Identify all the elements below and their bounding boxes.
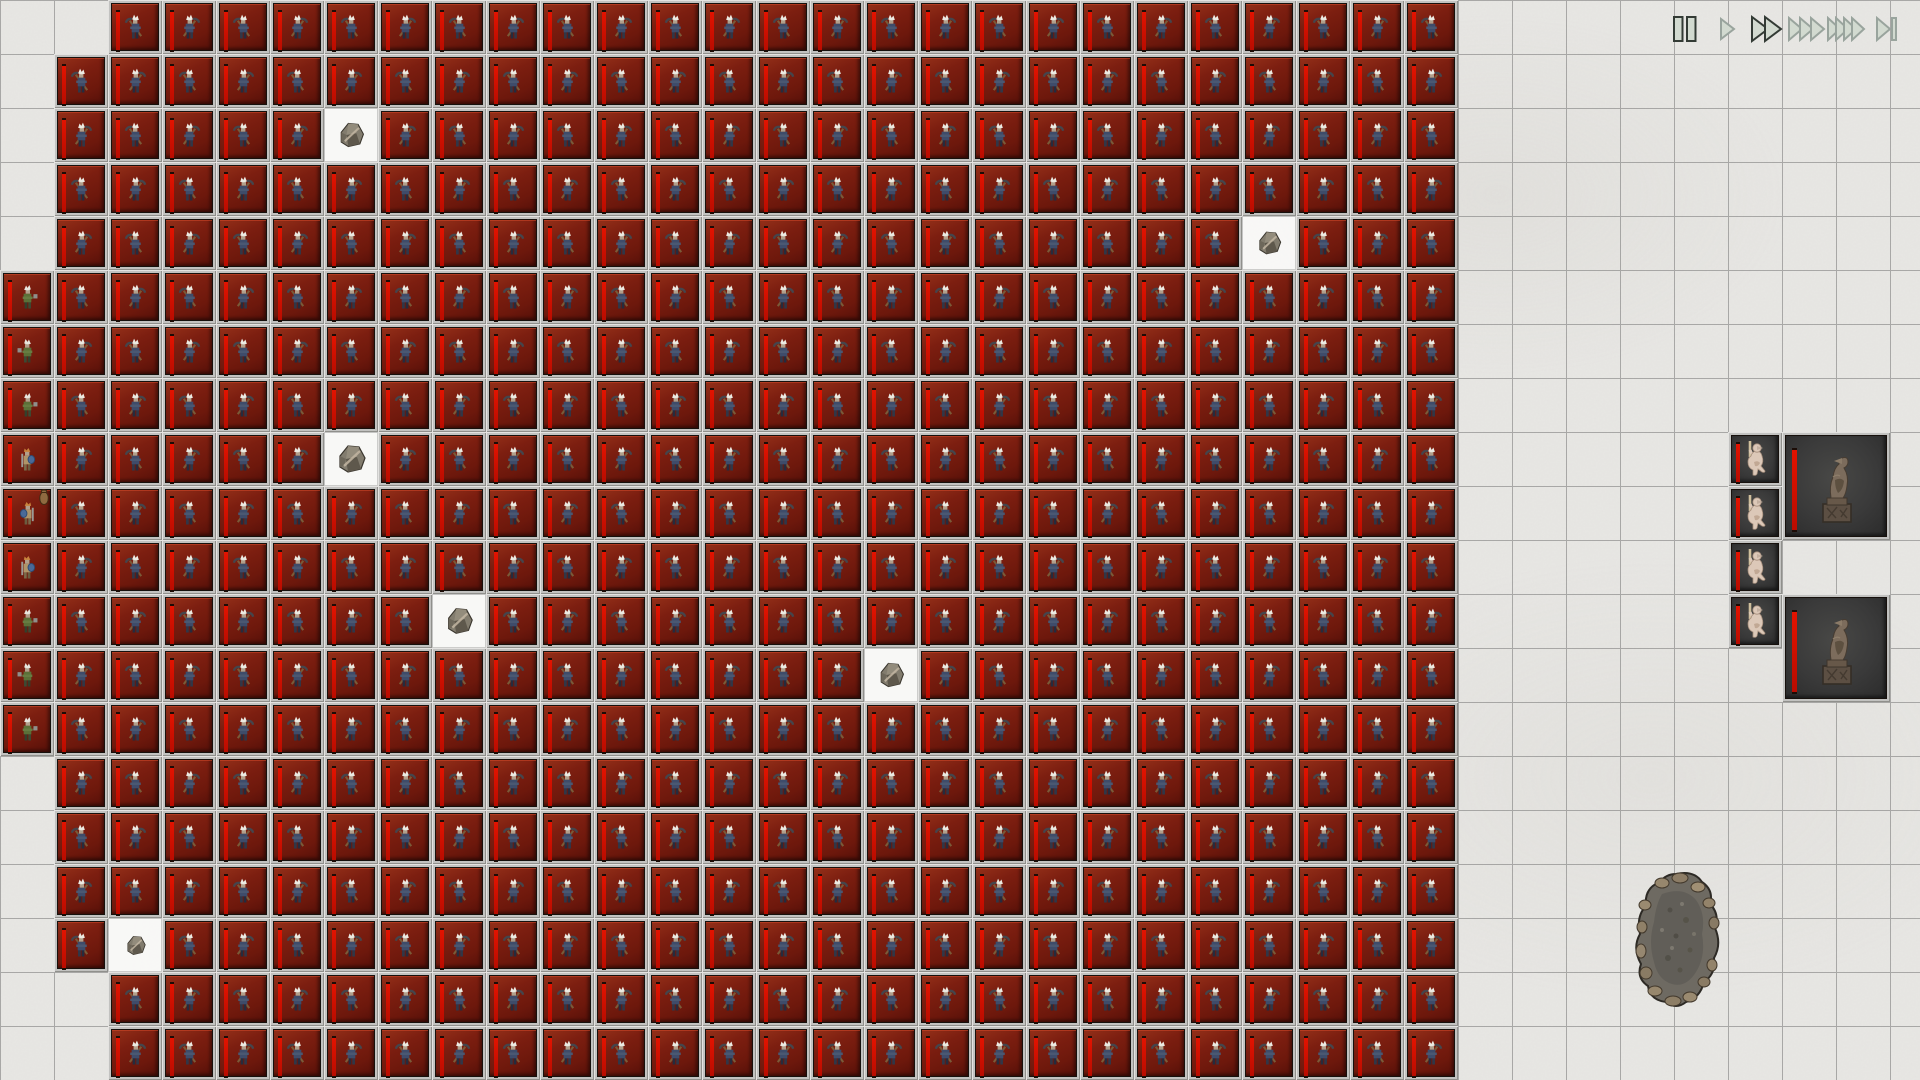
army-unit-tile[interactable] (1242, 648, 1296, 702)
army-unit-tile[interactable] (1026, 324, 1080, 378)
army-unit-tile[interactable] (648, 810, 702, 864)
army-unit-tile[interactable] (1296, 972, 1350, 1026)
army-unit-tile[interactable] (486, 54, 540, 108)
army-unit-tile[interactable] (1404, 54, 1458, 108)
army-unit-tile[interactable] (1404, 918, 1458, 972)
army-unit-tile[interactable] (324, 324, 378, 378)
army-unit-tile[interactable] (810, 1026, 864, 1080)
army-unit-tile[interactable] (594, 108, 648, 162)
army-unit-tile[interactable] (216, 972, 270, 1026)
army-unit-tile[interactable] (972, 918, 1026, 972)
army-unit-tile[interactable] (756, 54, 810, 108)
army-unit-tile[interactable] (108, 162, 162, 216)
army-unit-tile[interactable] (594, 648, 648, 702)
army-unit-tile[interactable] (918, 54, 972, 108)
army-unit-tile[interactable] (756, 324, 810, 378)
army-unit-tile[interactable] (0, 540, 54, 594)
army-unit-tile[interactable] (1350, 918, 1404, 972)
army-unit-tile[interactable] (486, 0, 540, 54)
army-unit-tile[interactable] (108, 432, 162, 486)
army-unit-tile[interactable] (918, 270, 972, 324)
army-unit-tile[interactable] (1242, 810, 1296, 864)
army-unit-tile[interactable] (216, 648, 270, 702)
army-unit-tile[interactable] (702, 0, 756, 54)
army-unit-tile[interactable] (1134, 540, 1188, 594)
army-unit-tile[interactable] (972, 0, 1026, 54)
army-unit-tile[interactable] (648, 540, 702, 594)
army-unit-tile[interactable] (702, 270, 756, 324)
army-unit-tile[interactable] (54, 54, 108, 108)
army-unit-tile[interactable] (1404, 432, 1458, 486)
army-unit-tile[interactable] (972, 486, 1026, 540)
army-unit-tile[interactable] (270, 108, 324, 162)
faster-button[interactable] (1784, 10, 1830, 50)
army-unit-tile[interactable] (1080, 918, 1134, 972)
army-unit-tile[interactable] (1188, 594, 1242, 648)
army-unit-tile[interactable] (1296, 108, 1350, 162)
army-unit-tile[interactable] (1134, 594, 1188, 648)
army-unit-tile[interactable] (486, 216, 540, 270)
army-unit-tile[interactable] (1296, 594, 1350, 648)
army-unit-tile[interactable] (540, 810, 594, 864)
army-unit-tile[interactable] (1242, 108, 1296, 162)
army-unit-tile[interactable] (1404, 594, 1458, 648)
army-unit-tile[interactable] (918, 216, 972, 270)
army-unit-tile[interactable] (378, 810, 432, 864)
army-unit-tile[interactable] (594, 54, 648, 108)
army-unit-tile[interactable] (486, 1026, 540, 1080)
army-unit-tile[interactable] (1026, 486, 1080, 540)
army-unit-tile[interactable] (432, 54, 486, 108)
army-unit-tile[interactable] (702, 54, 756, 108)
army-unit-tile[interactable] (540, 1026, 594, 1080)
army-unit-tile[interactable] (378, 270, 432, 324)
army-unit-tile[interactable] (54, 918, 108, 972)
army-unit-tile[interactable] (1188, 0, 1242, 54)
army-unit-tile[interactable] (1296, 756, 1350, 810)
army-unit-tile[interactable] (594, 702, 648, 756)
army-unit-tile[interactable] (324, 972, 378, 1026)
army-unit-tile[interactable] (216, 270, 270, 324)
army-unit-tile[interactable] (702, 108, 756, 162)
army-unit-tile[interactable] (972, 540, 1026, 594)
army-unit-tile[interactable] (486, 756, 540, 810)
army-unit-tile[interactable] (378, 540, 432, 594)
army-unit-tile[interactable] (1350, 216, 1404, 270)
army-unit-tile[interactable] (864, 108, 918, 162)
army-unit-tile[interactable] (918, 378, 972, 432)
army-unit-tile[interactable] (1296, 918, 1350, 972)
army-unit-tile[interactable] (810, 486, 864, 540)
army-unit-tile[interactable] (378, 324, 432, 378)
army-unit-tile[interactable] (1404, 108, 1458, 162)
army-unit-tile[interactable] (864, 594, 918, 648)
army-unit-tile[interactable] (648, 432, 702, 486)
army-unit-tile[interactable] (270, 270, 324, 324)
army-unit-tile[interactable] (432, 756, 486, 810)
army-unit-tile[interactable] (864, 756, 918, 810)
army-unit-tile[interactable] (1350, 54, 1404, 108)
army-unit-tile[interactable] (162, 648, 216, 702)
army-unit-tile[interactable] (432, 648, 486, 702)
pause-button[interactable] (1662, 10, 1708, 50)
army-unit-tile[interactable] (0, 378, 54, 432)
army-unit-tile[interactable] (108, 378, 162, 432)
army-unit-tile[interactable] (918, 702, 972, 756)
army-unit-tile[interactable] (378, 486, 432, 540)
army-unit-tile[interactable] (432, 0, 486, 54)
army-unit-tile[interactable] (216, 324, 270, 378)
army-unit-tile[interactable] (756, 702, 810, 756)
army-unit-tile[interactable] (270, 972, 324, 1026)
army-unit-tile[interactable] (378, 702, 432, 756)
army-unit-tile[interactable] (1188, 972, 1242, 1026)
army-unit-tile[interactable] (378, 648, 432, 702)
army-unit-tile[interactable] (1404, 972, 1458, 1026)
army-unit-tile[interactable] (1242, 756, 1296, 810)
army-unit-tile[interactable] (648, 1026, 702, 1080)
army-unit-tile[interactable] (810, 594, 864, 648)
army-unit-tile[interactable] (1026, 756, 1080, 810)
army-unit-tile[interactable] (108, 1026, 162, 1080)
army-unit-tile[interactable] (1350, 810, 1404, 864)
army-unit-tile[interactable] (1134, 486, 1188, 540)
army-unit-tile[interactable] (1134, 864, 1188, 918)
army-unit-tile[interactable] (864, 918, 918, 972)
army-unit-tile[interactable] (864, 324, 918, 378)
army-unit-tile[interactable] (918, 972, 972, 1026)
army-unit-tile[interactable] (1350, 324, 1404, 378)
army-unit-tile[interactable] (1188, 864, 1242, 918)
army-unit-tile[interactable] (756, 594, 810, 648)
army-unit-tile[interactable] (1080, 1026, 1134, 1080)
army-unit-tile[interactable] (1242, 1026, 1296, 1080)
army-unit-tile[interactable] (378, 378, 432, 432)
army-unit-tile[interactable] (1242, 702, 1296, 756)
army-unit-tile[interactable] (1188, 540, 1242, 594)
army-unit-tile[interactable] (540, 756, 594, 810)
army-unit-tile[interactable] (270, 540, 324, 594)
army-unit-tile[interactable] (270, 756, 324, 810)
army-unit-tile[interactable] (162, 702, 216, 756)
army-unit-tile[interactable] (1350, 648, 1404, 702)
army-unit-tile[interactable] (864, 162, 918, 216)
army-unit-tile[interactable] (1080, 216, 1134, 270)
army-unit-tile[interactable] (0, 270, 54, 324)
army-unit-tile[interactable] (54, 324, 108, 378)
army-unit-tile[interactable] (594, 756, 648, 810)
army-unit-tile[interactable] (432, 540, 486, 594)
army-unit-tile[interactable] (108, 972, 162, 1026)
army-unit-tile[interactable] (972, 1026, 1026, 1080)
army-unit-tile[interactable] (1296, 648, 1350, 702)
army-unit-tile[interactable] (1134, 810, 1188, 864)
army-unit-tile[interactable] (270, 918, 324, 972)
army-unit-tile[interactable] (270, 486, 324, 540)
army-unit-tile[interactable] (918, 810, 972, 864)
army-unit-tile[interactable] (810, 702, 864, 756)
army-unit-tile[interactable] (972, 54, 1026, 108)
army-unit-tile[interactable] (1188, 756, 1242, 810)
army-unit-tile[interactable] (1242, 972, 1296, 1026)
army-unit-tile[interactable] (1134, 162, 1188, 216)
army-unit-tile[interactable] (864, 864, 918, 918)
army-unit-tile[interactable] (216, 432, 270, 486)
army-unit-tile[interactable] (972, 702, 1026, 756)
army-unit-tile[interactable] (810, 756, 864, 810)
army-unit-tile[interactable] (1296, 702, 1350, 756)
army-unit-tile[interactable] (864, 486, 918, 540)
army-unit-tile[interactable] (1296, 162, 1350, 216)
army-unit-tile[interactable] (1080, 270, 1134, 324)
army-unit-tile[interactable] (162, 108, 216, 162)
army-unit-tile[interactable] (1026, 972, 1080, 1026)
enemy-unit-tile-small[interactable] (1728, 486, 1782, 540)
army-unit-tile[interactable] (540, 594, 594, 648)
army-unit-tile[interactable] (918, 0, 972, 54)
army-unit-tile[interactable] (1350, 540, 1404, 594)
army-unit-tile[interactable] (1134, 918, 1188, 972)
army-unit-tile[interactable] (270, 1026, 324, 1080)
army-unit-tile[interactable] (432, 162, 486, 216)
army-unit-tile[interactable] (378, 432, 432, 486)
army-unit-tile[interactable] (1296, 324, 1350, 378)
army-unit-tile[interactable] (108, 108, 162, 162)
army-unit-tile[interactable] (918, 918, 972, 972)
army-unit-tile[interactable] (1080, 648, 1134, 702)
army-unit-tile[interactable] (1188, 54, 1242, 108)
army-unit-tile[interactable] (648, 216, 702, 270)
army-unit-tile[interactable] (702, 918, 756, 972)
army-unit-tile[interactable] (324, 864, 378, 918)
army-unit-tile[interactable] (432, 324, 486, 378)
army-unit-tile[interactable] (648, 270, 702, 324)
army-unit-tile[interactable] (486, 864, 540, 918)
army-unit-tile[interactable] (756, 0, 810, 54)
army-unit-tile[interactable] (108, 324, 162, 378)
army-unit-tile[interactable] (1350, 0, 1404, 54)
army-unit-tile[interactable] (324, 648, 378, 702)
army-unit-tile[interactable] (216, 486, 270, 540)
army-unit-tile[interactable] (324, 810, 378, 864)
army-unit-tile[interactable] (54, 162, 108, 216)
army-unit-tile[interactable] (216, 594, 270, 648)
army-unit-tile[interactable] (972, 594, 1026, 648)
army-unit-tile[interactable] (216, 864, 270, 918)
army-unit-tile[interactable] (810, 324, 864, 378)
army-unit-tile[interactable] (1026, 270, 1080, 324)
army-unit-tile[interactable] (216, 918, 270, 972)
army-unit-tile[interactable] (216, 378, 270, 432)
army-unit-tile[interactable] (1350, 270, 1404, 324)
army-unit-tile[interactable] (162, 1026, 216, 1080)
army-unit-tile[interactable] (270, 432, 324, 486)
army-unit-tile[interactable] (486, 648, 540, 702)
army-unit-tile[interactable] (864, 432, 918, 486)
army-unit-tile[interactable] (1080, 162, 1134, 216)
army-unit-tile[interactable] (540, 486, 594, 540)
army-unit-tile[interactable] (1404, 324, 1458, 378)
army-unit-tile[interactable] (216, 756, 270, 810)
army-unit-tile[interactable] (162, 270, 216, 324)
army-unit-tile[interactable] (540, 54, 594, 108)
army-unit-tile[interactable] (648, 54, 702, 108)
army-unit-tile[interactable] (1134, 0, 1188, 54)
army-unit-tile[interactable] (1296, 486, 1350, 540)
army-unit-tile[interactable] (216, 540, 270, 594)
army-unit-tile[interactable] (756, 108, 810, 162)
army-unit-tile[interactable] (324, 54, 378, 108)
army-unit-tile[interactable] (918, 594, 972, 648)
army-unit-tile[interactable] (1404, 648, 1458, 702)
army-unit-tile[interactable] (1080, 108, 1134, 162)
army-unit-tile[interactable] (648, 756, 702, 810)
army-unit-tile[interactable] (324, 1026, 378, 1080)
army-unit-tile[interactable] (432, 486, 486, 540)
army-unit-tile[interactable] (1080, 54, 1134, 108)
army-unit-tile[interactable] (594, 432, 648, 486)
army-unit-tile[interactable] (702, 864, 756, 918)
army-unit-tile[interactable] (810, 972, 864, 1026)
enemy-unit-tile-small[interactable] (1728, 540, 1782, 594)
army-unit-tile[interactable] (1350, 486, 1404, 540)
army-unit-tile[interactable] (486, 486, 540, 540)
army-unit-tile[interactable] (1350, 594, 1404, 648)
army-unit-tile[interactable] (972, 972, 1026, 1026)
army-unit-tile[interactable] (918, 162, 972, 216)
army-unit-tile[interactable] (432, 1026, 486, 1080)
army-unit-tile[interactable] (486, 972, 540, 1026)
army-unit-tile[interactable] (810, 0, 864, 54)
army-unit-tile[interactable] (864, 378, 918, 432)
army-unit-tile[interactable] (702, 972, 756, 1026)
army-unit-tile[interactable] (864, 0, 918, 54)
army-unit-tile[interactable] (864, 54, 918, 108)
army-unit-tile[interactable] (1026, 216, 1080, 270)
army-unit-tile[interactable] (162, 216, 216, 270)
army-unit-tile[interactable] (432, 810, 486, 864)
army-unit-tile[interactable] (162, 540, 216, 594)
army-unit-tile[interactable] (594, 486, 648, 540)
army-unit-tile[interactable] (648, 108, 702, 162)
army-unit-tile[interactable] (594, 864, 648, 918)
army-unit-tile[interactable] (378, 1026, 432, 1080)
army-unit-tile[interactable] (594, 972, 648, 1026)
army-unit-tile[interactable] (1296, 270, 1350, 324)
army-unit-tile[interactable] (0, 324, 54, 378)
army-unit-tile[interactable] (54, 108, 108, 162)
army-unit-tile[interactable] (324, 378, 378, 432)
army-unit-tile[interactable] (1296, 540, 1350, 594)
army-unit-tile[interactable] (162, 0, 216, 54)
army-unit-tile[interactable] (540, 270, 594, 324)
army-unit-tile[interactable] (756, 918, 810, 972)
army-unit-tile[interactable] (108, 810, 162, 864)
army-unit-tile[interactable] (162, 486, 216, 540)
army-unit-tile[interactable] (648, 0, 702, 54)
army-unit-tile[interactable] (648, 702, 702, 756)
army-unit-tile[interactable] (486, 378, 540, 432)
army-unit-tile[interactable] (1242, 270, 1296, 324)
army-unit-tile[interactable] (1026, 810, 1080, 864)
army-unit-tile[interactable] (54, 540, 108, 594)
army-unit-tile[interactable] (1242, 864, 1296, 918)
army-unit-tile[interactable] (972, 378, 1026, 432)
army-unit-tile[interactable] (324, 594, 378, 648)
army-unit-tile[interactable] (810, 432, 864, 486)
army-unit-tile[interactable] (378, 864, 432, 918)
army-unit-tile[interactable] (270, 0, 324, 54)
army-unit-tile[interactable] (648, 648, 702, 702)
army-unit-tile[interactable] (54, 756, 108, 810)
army-unit-tile[interactable] (702, 810, 756, 864)
army-unit-tile[interactable] (1404, 216, 1458, 270)
army-unit-tile[interactable] (1188, 648, 1242, 702)
army-unit-tile[interactable] (648, 864, 702, 918)
army-unit-tile[interactable] (216, 810, 270, 864)
army-unit-tile[interactable] (1188, 486, 1242, 540)
army-unit-tile[interactable] (1242, 594, 1296, 648)
army-unit-tile[interactable] (756, 486, 810, 540)
army-unit-tile[interactable] (1242, 432, 1296, 486)
army-unit-tile[interactable] (1026, 108, 1080, 162)
army-unit-tile[interactable] (108, 756, 162, 810)
army-unit-tile[interactable] (540, 972, 594, 1026)
army-unit-tile[interactable] (864, 540, 918, 594)
army-unit-tile[interactable] (1080, 432, 1134, 486)
army-unit-tile[interactable] (1296, 432, 1350, 486)
army-unit-tile[interactable] (594, 540, 648, 594)
army-unit-tile[interactable] (378, 108, 432, 162)
army-unit-tile[interactable] (1134, 1026, 1188, 1080)
army-unit-tile[interactable] (1026, 54, 1080, 108)
army-unit-tile[interactable] (486, 324, 540, 378)
army-unit-tile[interactable] (1080, 864, 1134, 918)
army-unit-tile[interactable] (702, 432, 756, 486)
army-unit-tile[interactable] (972, 756, 1026, 810)
army-unit-tile[interactable] (324, 540, 378, 594)
army-unit-tile[interactable] (0, 432, 54, 486)
army-unit-tile[interactable] (972, 864, 1026, 918)
army-unit-tile[interactable] (54, 864, 108, 918)
army-unit-tile[interactable] (378, 54, 432, 108)
army-unit-tile[interactable] (1134, 378, 1188, 432)
army-unit-tile[interactable] (1404, 486, 1458, 540)
army-unit-tile[interactable] (54, 486, 108, 540)
army-unit-tile[interactable] (594, 594, 648, 648)
army-unit-tile[interactable] (1404, 756, 1458, 810)
army-unit-tile[interactable] (756, 864, 810, 918)
army-unit-tile[interactable] (540, 378, 594, 432)
army-unit-tile[interactable] (54, 648, 108, 702)
army-unit-tile[interactable] (54, 378, 108, 432)
army-unit-tile[interactable] (810, 162, 864, 216)
army-unit-tile[interactable] (270, 702, 324, 756)
army-unit-tile[interactable] (1134, 756, 1188, 810)
army-unit-tile[interactable] (594, 216, 648, 270)
army-unit-tile[interactable] (270, 162, 324, 216)
army-unit-tile[interactable] (108, 864, 162, 918)
army-unit-tile[interactable] (1026, 432, 1080, 486)
army-unit-tile[interactable] (54, 432, 108, 486)
army-unit-tile[interactable] (1080, 324, 1134, 378)
army-unit-tile[interactable] (540, 648, 594, 702)
army-unit-tile[interactable] (0, 648, 54, 702)
army-unit-tile[interactable] (270, 378, 324, 432)
army-unit-tile[interactable] (756, 162, 810, 216)
army-unit-tile[interactable] (486, 162, 540, 216)
army-unit-tile[interactable] (1350, 378, 1404, 432)
